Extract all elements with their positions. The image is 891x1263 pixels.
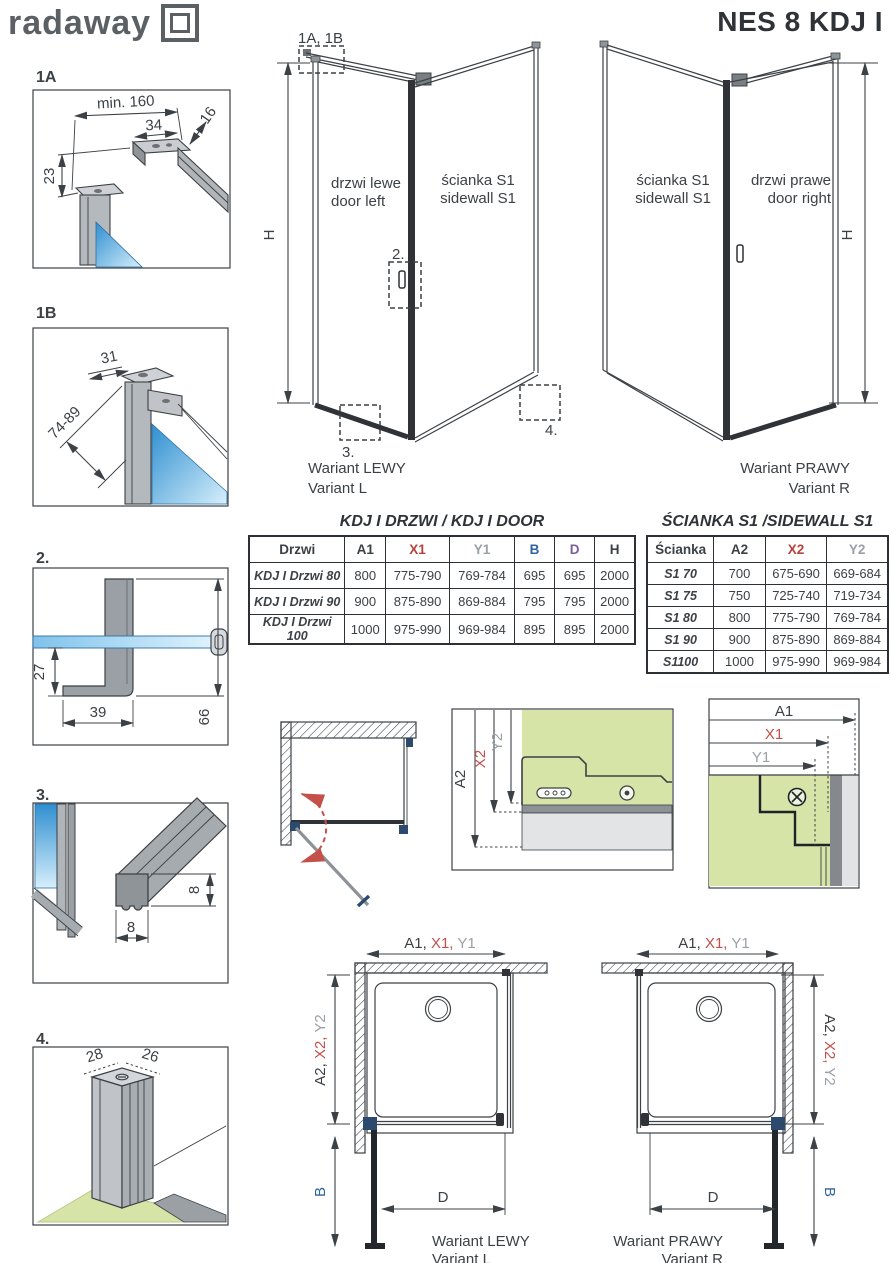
table-row: KDJ I Drzwi 100 1000 975-990 969-984 895…: [249, 615, 635, 645]
col-header: Y1: [450, 536, 515, 563]
cell: 725-740: [765, 585, 827, 607]
cell: KDJ I Drzwi 100: [249, 615, 345, 645]
swing-plan-enclosure: [290, 738, 413, 906]
cell: 1000: [714, 651, 766, 674]
cell: 2000: [595, 615, 635, 645]
cell: S1 75: [647, 585, 714, 607]
plan-left-variant: Wariant LEWY Variant L: [432, 1233, 530, 1263]
cell: 969-984: [827, 651, 888, 674]
cell: 795: [514, 589, 554, 615]
detail-1a-dimensions: min. 160 34 16 23: [41, 93, 220, 197]
tray-strip: [842, 775, 858, 886]
table-row: S1 90 900 875-890 869-884: [647, 629, 888, 651]
door-handle: [496, 1113, 504, 1126]
callout-1a1b-label: 1A, 1B: [298, 30, 343, 47]
open-door-glass: [772, 1130, 778, 1248]
cell: 775-790: [765, 607, 827, 629]
dim-a1: A1: [775, 703, 793, 720]
radaway-logo: radaway: [8, 2, 199, 44]
dim-b: B: [312, 1187, 329, 1197]
detail-2-profile-shapes: [33, 579, 227, 696]
cell: 769-784: [827, 607, 888, 629]
plan-left-tray: [367, 973, 513, 1133]
left-view-callouts: 1A, 1B 2. 3. 4.: [298, 30, 560, 461]
callout-4-label: 4.: [545, 422, 558, 439]
height-label: H: [261, 230, 278, 241]
slot-hole: [537, 788, 571, 798]
cell: 800: [345, 563, 386, 589]
dim-b: B: [821, 1187, 838, 1197]
sidewall-label-pl: ścianka S1: [441, 172, 514, 189]
cell: 800: [714, 607, 766, 629]
cell: 700: [714, 563, 766, 585]
col-header: A1: [345, 536, 386, 563]
table-row: KDJ I Drzwi 90 900 875-890 869-884 795 7…: [249, 589, 635, 615]
sidewall-clamp: [502, 969, 510, 976]
plan-right-side-dims: A2, X2, Y2: [821, 1014, 838, 1085]
plan-variant-left: A1, X1, Y1 A2, X2, Y2 B D Wariant LEWY V…: [300, 928, 600, 1263]
variant-label-en: Variant R: [662, 1251, 724, 1263]
callout-4-box: [520, 385, 560, 420]
col-header: B: [514, 536, 554, 563]
detail-1a-label: 1A: [36, 69, 57, 86]
cell: 2000: [595, 589, 635, 615]
cell: S1 80: [647, 607, 714, 629]
table-row: KDJ I Drzwi 80 800 775-790 769-784 695 6…: [249, 563, 635, 589]
view-variant-left: H 1A, 1B 2. 3. 4. drzwi lewe door left ś…: [258, 25, 593, 503]
cell: 895: [555, 615, 595, 645]
callout-3-label: 3.: [342, 444, 355, 461]
profile-band: [522, 805, 672, 813]
cell: 750: [714, 585, 766, 607]
open-door-foot: [365, 1243, 385, 1249]
cell: 900: [345, 589, 386, 615]
open-door-glass: [371, 1130, 377, 1248]
door-handle: [641, 1113, 649, 1126]
detail-4-drawing: 4. 28 26: [30, 1032, 232, 1228]
cell: S1 70: [647, 563, 714, 585]
detail-1b-profile-shapes: [122, 368, 227, 504]
view-variant-right: H ścianka S1 sidewall S1 drzwi prawe doo…: [588, 25, 891, 503]
sidewall-clamp: [399, 825, 408, 834]
callout-2-label: 2.: [392, 246, 405, 263]
detail-3-label: 3.: [36, 787, 49, 804]
swing-plan-walls: [281, 722, 416, 845]
variant-left-label-en: Variant L: [308, 480, 367, 497]
col-header: Y2: [827, 536, 888, 563]
plan-right-glass: [635, 969, 785, 1249]
sidewall-label-en: sidewall S1: [635, 190, 711, 207]
left-view-dimension-h: H: [261, 63, 310, 403]
door-hinge-profile: [408, 80, 415, 440]
cell: KDJ I Drzwi 80: [249, 563, 345, 589]
door-right-label-pl: drzwi prawe: [751, 172, 831, 189]
cell: 775-790: [386, 563, 450, 589]
door-handle: [737, 245, 743, 262]
door-table: Drzwi A1 X1 Y1 B D H KDJ I Drzwi 80 800 …: [248, 535, 636, 645]
dim-8-width: 8: [127, 919, 135, 936]
corner-materials: [709, 775, 859, 886]
cell: 795: [555, 589, 595, 615]
closed-door-glass: [291, 820, 404, 824]
left-view-structure: [303, 42, 540, 442]
variant-label-pl: Wariant LEWY: [432, 1233, 530, 1250]
cell: 695: [514, 563, 554, 589]
door-table-section: KDJ I DRZWI / KDJ I DOOR Drzwi A1 X1 Y1 …: [248, 513, 636, 645]
plan-right-variant: Wariant PRAWY Variant R: [613, 1233, 723, 1263]
door-hinge: [363, 1117, 377, 1130]
cell: 1000: [345, 615, 386, 645]
wall-corner-section: A1 X1 Y1: [703, 697, 863, 893]
spec-sheet-page: radaway NES 8 KDJ I 1A min. 160 34 16 23…: [0, 0, 891, 1263]
right-view-structure: [600, 41, 840, 441]
sidewall-table-title: ŚCIANKA S1 /SIDEWALL S1: [646, 513, 889, 531]
table-header-row: Ścianka A2 X2 Y2: [647, 536, 888, 563]
door-right-label-en: door right: [768, 190, 832, 207]
door-handle: [399, 271, 405, 288]
cell: 875-890: [765, 629, 827, 651]
cell: KDJ I Drzwi 90: [249, 589, 345, 615]
detail-1b-drawing: 1B 31 74-89: [30, 296, 232, 512]
table-row: S1 80 800 775-790 769-784: [647, 607, 888, 629]
cell: 900: [714, 629, 766, 651]
detail-4-corner-profile: [92, 1068, 153, 1208]
open-door-glass: [296, 828, 368, 905]
table-row: S1 70 700 675-690 669-684: [647, 563, 888, 585]
cell: S1100: [647, 651, 714, 674]
plan-left-glass: [363, 969, 511, 1249]
cell: 2000: [595, 563, 635, 589]
drain-icon: [426, 997, 451, 1022]
col-header: X1: [386, 536, 450, 563]
dim-34: 34: [145, 117, 163, 135]
col-header: A2: [714, 536, 766, 563]
dim-23: 23: [41, 168, 58, 185]
plan-left-side-dims: A2, X2, Y2: [312, 1014, 329, 1085]
dim-28: 28: [84, 1045, 105, 1066]
glass-pane: [96, 222, 142, 267]
plan-right-dimensions: A2, X2, Y2 B D: [650, 975, 838, 1246]
cell: 975-990: [765, 651, 827, 674]
profile-strip: [830, 775, 842, 886]
cell: 969-984: [450, 615, 515, 645]
logo-text: radaway: [8, 2, 151, 44]
detail-1b-dimensions: 31 74-89: [45, 348, 128, 488]
open-door-foot: [764, 1243, 784, 1249]
dim-d: D: [438, 1189, 449, 1206]
door-left-label-pl: drzwi lewe: [331, 175, 401, 192]
col-header: Ścianka: [647, 536, 714, 563]
dim-y1: Y1: [752, 749, 770, 766]
col-header: H: [595, 536, 635, 563]
detail-1a-drawing: 1A min. 160 34 16 23: [30, 60, 232, 272]
table-row: S1100 1000 975-990 969-984: [647, 651, 888, 674]
section-materials: [522, 710, 672, 850]
variant-right-label-en: Variant R: [789, 480, 851, 497]
dim-16: 16: [197, 104, 220, 127]
sidewall-label-en: sidewall S1: [440, 190, 516, 207]
cell: 769-784: [450, 563, 515, 589]
table-header-row: Drzwi A1 X1 Y1 B D H: [249, 536, 635, 563]
detail-4-label: 4.: [36, 1032, 49, 1048]
door-table-title: KDJ I DRZWI / KDJ I DOOR: [248, 513, 636, 531]
dim-x1: X1: [765, 726, 783, 743]
plan-left-top-dims: A1, X1, Y1: [404, 935, 475, 952]
cell: 895: [514, 615, 554, 645]
plan-right-tray: [637, 973, 785, 1133]
door-hinge-profile: [723, 80, 730, 440]
dim-a2: A2: [452, 770, 469, 788]
plan-variant-right: A1, X1, Y1 A2, X2, Y2 B D Wariant PRAWY …: [591, 928, 891, 1263]
right-view-dimension-h: H: [829, 63, 878, 403]
dim-39: 39: [90, 704, 107, 721]
dim-31: 31: [99, 348, 119, 368]
section-dimensions: A2 X2 Y2: [452, 710, 522, 847]
cell: S1 90: [647, 629, 714, 651]
logo-square-icon: [161, 4, 199, 42]
cell: 869-884: [450, 589, 515, 615]
glass-pane: [35, 804, 57, 888]
swing-arc-arrow: [302, 794, 326, 862]
variant-label-pl: Wariant PRAWY: [613, 1233, 723, 1250]
dim-y2: Y2: [489, 733, 506, 751]
col-header: D: [555, 536, 595, 563]
wall-green: [709, 775, 830, 886]
dim-26: 26: [140, 1045, 161, 1066]
col-header: X2: [765, 536, 827, 563]
door-left-label-en: door left: [331, 193, 386, 210]
cell: 675-690: [765, 563, 827, 585]
sidewall-clamp: [635, 969, 643, 976]
sidewall-table: Ścianka A2 X2 Y2 S1 70 700 675-690 669-6…: [646, 535, 889, 674]
drain-icon: [697, 997, 722, 1022]
detail-2-drawing: 2. 27 39 66: [30, 544, 232, 749]
cell: 869-884: [827, 629, 888, 651]
door-handle: [211, 629, 227, 655]
cell: 695: [555, 563, 595, 589]
sidewall-clamp: [406, 738, 413, 747]
variant-label-en: Variant L: [432, 1251, 491, 1263]
dim-66: 66: [196, 709, 213, 726]
tray-band: [522, 813, 672, 850]
detail-2-label: 2.: [36, 550, 49, 567]
glass-pane: [152, 424, 227, 504]
right-view-texts: ścianka S1 sidewall S1 drzwi prawe door …: [635, 172, 850, 497]
cell: 975-990: [386, 615, 450, 645]
door-swing-plan: [252, 700, 457, 935]
detail-1b-label: 1B: [36, 305, 56, 322]
col-header: Drzwi: [249, 536, 345, 563]
dim-x2: X2: [472, 750, 489, 768]
sidewall-table-section: ŚCIANKA S1 /SIDEWALL S1 Ścianka A2 X2 Y2…: [646, 513, 889, 674]
cell: 875-890: [386, 589, 450, 615]
dim-d: D: [708, 1189, 719, 1206]
glass-pane: [33, 636, 213, 648]
dim-8-height: 8: [186, 886, 203, 894]
dim-27: 27: [31, 664, 48, 681]
detail-3-drawing: 3. 8 8: [30, 786, 232, 988]
height-label: H: [839, 230, 856, 241]
detail-3-door-edge: [34, 804, 82, 937]
plan-right-top-dims: A1, X1, Y1: [678, 935, 749, 952]
dim-min160: min. 160: [97, 93, 155, 113]
door-hinge: [771, 1117, 785, 1130]
plan-left-dimensions: A2, X2, Y2 B D: [312, 975, 505, 1246]
variant-right-label-pl: Wariant PRAWY: [740, 460, 850, 477]
table-row: S1 75 750 725-740 719-734: [647, 585, 888, 607]
wall-mount-section: A2 X2 Y2: [451, 701, 677, 873]
dim-74-89: 74-89: [45, 403, 84, 442]
detail-1a-bracket-shapes: [76, 139, 228, 267]
cell: 719-734: [827, 585, 888, 607]
cell: 669-684: [827, 563, 888, 585]
variant-left-label-pl: Wariant LEWY: [308, 460, 406, 477]
sidewall-label-pl: ścianka S1: [636, 172, 709, 189]
